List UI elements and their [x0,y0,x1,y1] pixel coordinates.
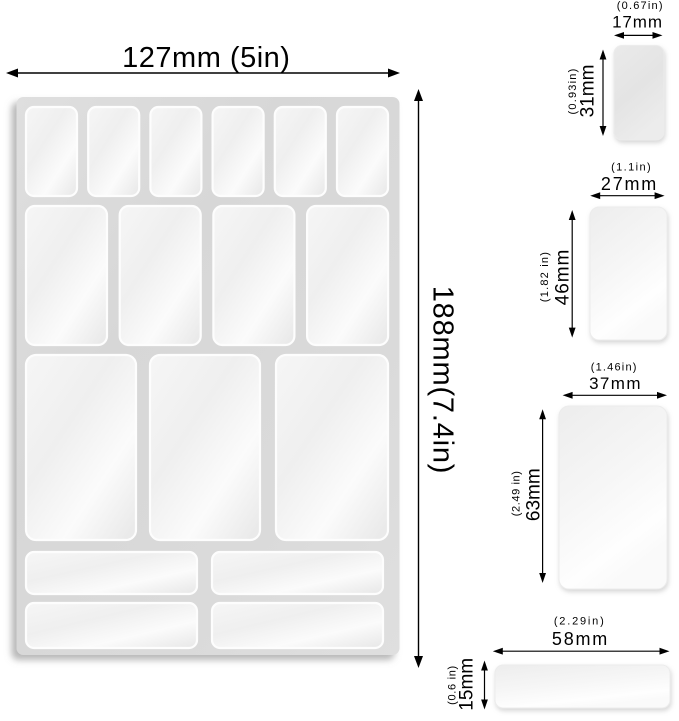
svg-text:46mm: 46mm [553,249,574,305]
svg-text:58mm: 58mm [552,629,609,649]
svg-text:37mm: 37mm [589,374,642,393]
svg-text:(0.93in): (0.93in) [567,68,579,115]
svg-text:(0.67in): (0.67in) [617,0,664,12]
svg-text:(2.29in): (2.29in) [554,616,606,628]
svg-text:(1.82 in): (1.82 in) [539,251,551,302]
svg-text:127mm (5in): 127mm (5in) [122,42,290,74]
svg-text:27mm: 27mm [601,174,658,194]
svg-text:(1.1in): (1.1in) [611,162,652,174]
svg-text:15mm: 15mm [457,658,478,711]
svg-text:(0.6 in): (0.6 in) [446,665,458,705]
svg-text:(1.46in): (1.46in) [591,362,638,374]
svg-text:(2.49 in): (2.49 in) [510,471,522,517]
svg-text:63mm: 63mm [523,468,544,521]
svg-text:188mm(7.4in): 188mm(7.4in) [427,286,459,475]
svg-text:31mm: 31mm [578,65,599,118]
svg-text:17mm: 17mm [612,13,663,32]
